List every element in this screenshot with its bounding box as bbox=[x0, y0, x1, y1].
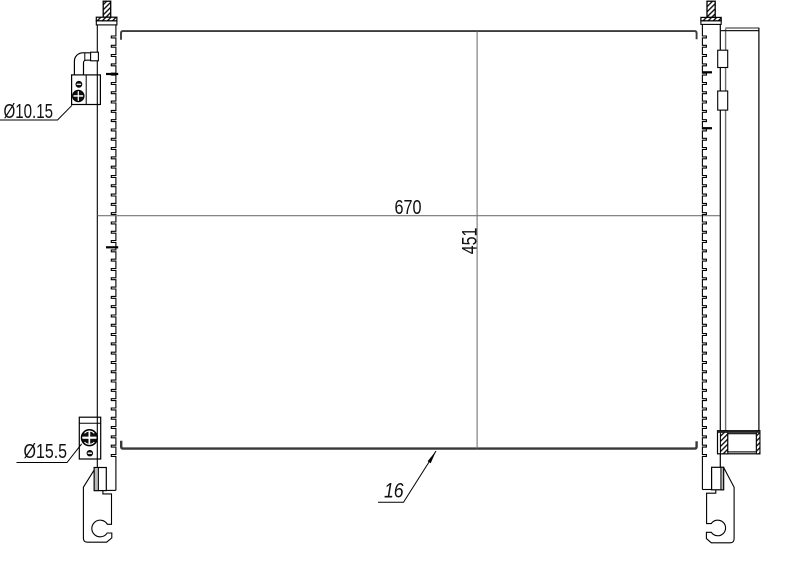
svg-text:16: 16 bbox=[384, 479, 404, 503]
svg-text:670: 670 bbox=[395, 195, 422, 218]
svg-text:451: 451 bbox=[457, 228, 481, 255]
svg-text:Ø10.15: Ø10.15 bbox=[4, 100, 54, 123]
svg-text:Ø15.5: Ø15.5 bbox=[24, 440, 68, 462]
